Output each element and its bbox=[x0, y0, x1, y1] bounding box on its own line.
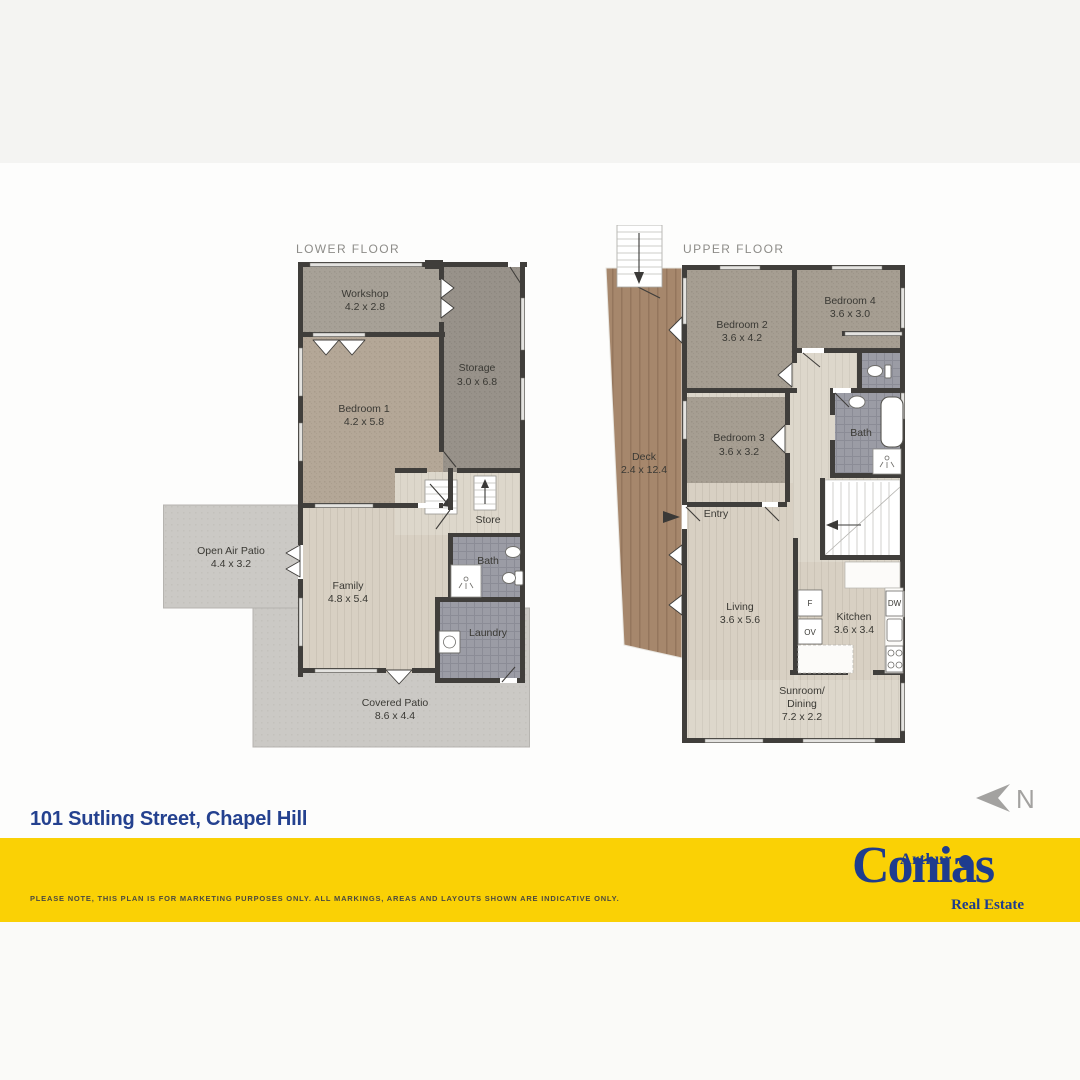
kitchen-label: Kitchen bbox=[836, 611, 871, 623]
family-label: Family bbox=[333, 580, 365, 592]
north-arrow-icon bbox=[976, 784, 1010, 812]
washing-machine bbox=[439, 631, 460, 653]
agency-logo: Conias Arthur Real Estate bbox=[852, 846, 1024, 918]
upper-bath-sink bbox=[849, 396, 865, 408]
deck-dims: 2.4 x 12.4 bbox=[621, 464, 667, 476]
deck-label: Deck bbox=[632, 451, 657, 463]
family-top-window bbox=[315, 504, 373, 508]
storage-door-gap bbox=[508, 262, 520, 267]
bedroom4-right-window bbox=[901, 288, 905, 328]
entry-door-gap bbox=[682, 505, 687, 529]
laundry-door-gap bbox=[500, 678, 517, 683]
toilet-bowl bbox=[503, 573, 516, 584]
family-bottom-window bbox=[315, 669, 377, 673]
sunroom-dims: 7.2 x 2.2 bbox=[782, 711, 822, 723]
bedroom3-robe bbox=[683, 401, 687, 439]
bedroom2-top-window bbox=[720, 266, 760, 270]
bedroom2-robe-1 bbox=[683, 278, 687, 324]
bedroom4-door-gap bbox=[802, 348, 824, 353]
fridge-label: F bbox=[808, 599, 813, 608]
stove bbox=[886, 646, 903, 672]
bathtub bbox=[881, 397, 903, 447]
bedroom4-label: Bedroom 4 bbox=[824, 295, 876, 307]
hall-door-gap bbox=[418, 503, 439, 508]
storage-right-window-2 bbox=[521, 378, 525, 420]
upper-floor-title: UPPER FLOOR bbox=[683, 242, 784, 256]
open-air-patio-label: Open Air Patio bbox=[197, 545, 265, 557]
sunroom-bottom-window-2 bbox=[803, 739, 875, 743]
open-air-patio-dims: 4.4 x 3.2 bbox=[211, 558, 251, 570]
upper-floor-plan: UPPER FLOOR bbox=[605, 225, 905, 748]
bedroom1-top-window bbox=[313, 333, 365, 337]
storage-label: Storage bbox=[459, 362, 496, 374]
lower-floor-plan: LOWER FLOOR bbox=[163, 240, 530, 748]
family-left-window bbox=[299, 598, 303, 646]
kitchen-counter-top bbox=[845, 562, 900, 588]
deck-floor bbox=[606, 268, 682, 658]
bedroom4-dims: 3.6 x 3.0 bbox=[830, 308, 870, 320]
upper-stairs bbox=[825, 480, 900, 557]
living-dims: 3.6 x 5.6 bbox=[720, 614, 760, 626]
oven-label: OV bbox=[804, 628, 816, 637]
covered-patio-dims: 8.6 x 4.4 bbox=[375, 710, 415, 722]
entry-label: Entry bbox=[704, 508, 729, 520]
logo-arthur-text: Arthur bbox=[900, 851, 952, 869]
bath-sink bbox=[506, 547, 521, 558]
north-indicator: N bbox=[958, 778, 1058, 823]
covered-patio-label: Covered Patio bbox=[362, 697, 429, 709]
upper-toilet-bowl bbox=[868, 366, 883, 377]
top-background-band bbox=[0, 0, 1080, 163]
bedroom4-robe bbox=[845, 332, 902, 336]
storage-right-window-1 bbox=[521, 298, 525, 350]
living-label: Living bbox=[726, 601, 754, 613]
kitchen-sink bbox=[887, 619, 902, 641]
bedroom2-dims: 3.6 x 4.2 bbox=[722, 332, 762, 344]
upper-toilet-tank bbox=[885, 365, 891, 378]
sunroom-right-window bbox=[901, 683, 905, 731]
bedroom3-label: Bedroom 3 bbox=[713, 432, 765, 444]
logo-dot-icon bbox=[959, 855, 972, 868]
family-dims: 4.8 x 5.4 bbox=[328, 593, 368, 605]
bedroom1-left-window-1 bbox=[299, 348, 303, 396]
bedroom2-label: Bedroom 2 bbox=[716, 319, 768, 331]
bedroom3-dims: 3.6 x 3.2 bbox=[719, 446, 759, 458]
workshop-label: Workshop bbox=[341, 288, 388, 300]
disclaimer-text: PLEASE NOTE, THIS PLAN IS FOR MARKETING … bbox=[30, 894, 619, 903]
brand-banner: PLEASE NOTE, THIS PLAN IS FOR MARKETING … bbox=[0, 838, 1080, 922]
bedroom1-dims: 4.2 x 5.8 bbox=[344, 416, 384, 428]
bedroom1-left-window-2 bbox=[299, 423, 303, 461]
kitchen-dims: 3.6 x 3.4 bbox=[834, 624, 874, 636]
laundry-label: Laundry bbox=[469, 627, 508, 639]
bedroom4-top-window bbox=[832, 266, 882, 270]
bath-label: Bath bbox=[477, 555, 499, 567]
toilet-tank bbox=[515, 571, 523, 585]
upper-shower bbox=[873, 449, 901, 474]
storage-dims: 3.0 x 6.8 bbox=[457, 376, 497, 388]
floor-plan-page: LOWER FLOOR bbox=[0, 0, 1080, 1080]
property-address: 101 Sutling Street, Chapel Hill bbox=[30, 808, 307, 831]
bottom-background-band bbox=[0, 922, 1080, 1080]
store-label: Store bbox=[475, 514, 500, 526]
workshop-dims: 4.2 x 2.8 bbox=[345, 301, 385, 313]
deck-stairs bbox=[617, 225, 662, 287]
north-label: N bbox=[1016, 784, 1035, 814]
bedroom3-bottom-gap bbox=[762, 502, 778, 507]
bath-door-gap bbox=[833, 388, 851, 393]
sunroom-label-2: Dining bbox=[787, 698, 817, 710]
bedroom2-floor bbox=[687, 270, 792, 392]
logo-realestate-text: Real Estate bbox=[951, 897, 1024, 914]
bedroom1-label: Bedroom 1 bbox=[338, 403, 390, 415]
dishwasher-label: DW bbox=[888, 599, 902, 608]
lower-floor-title: LOWER FLOOR bbox=[296, 242, 400, 256]
upper-bath-label: Bath bbox=[850, 427, 872, 439]
sunroom-bottom-window-1 bbox=[705, 739, 763, 743]
workshop-window bbox=[310, 263, 422, 267]
sunroom-label-1: Sunroom/ bbox=[779, 685, 825, 697]
kitchen-counter-bottom bbox=[798, 645, 853, 673]
